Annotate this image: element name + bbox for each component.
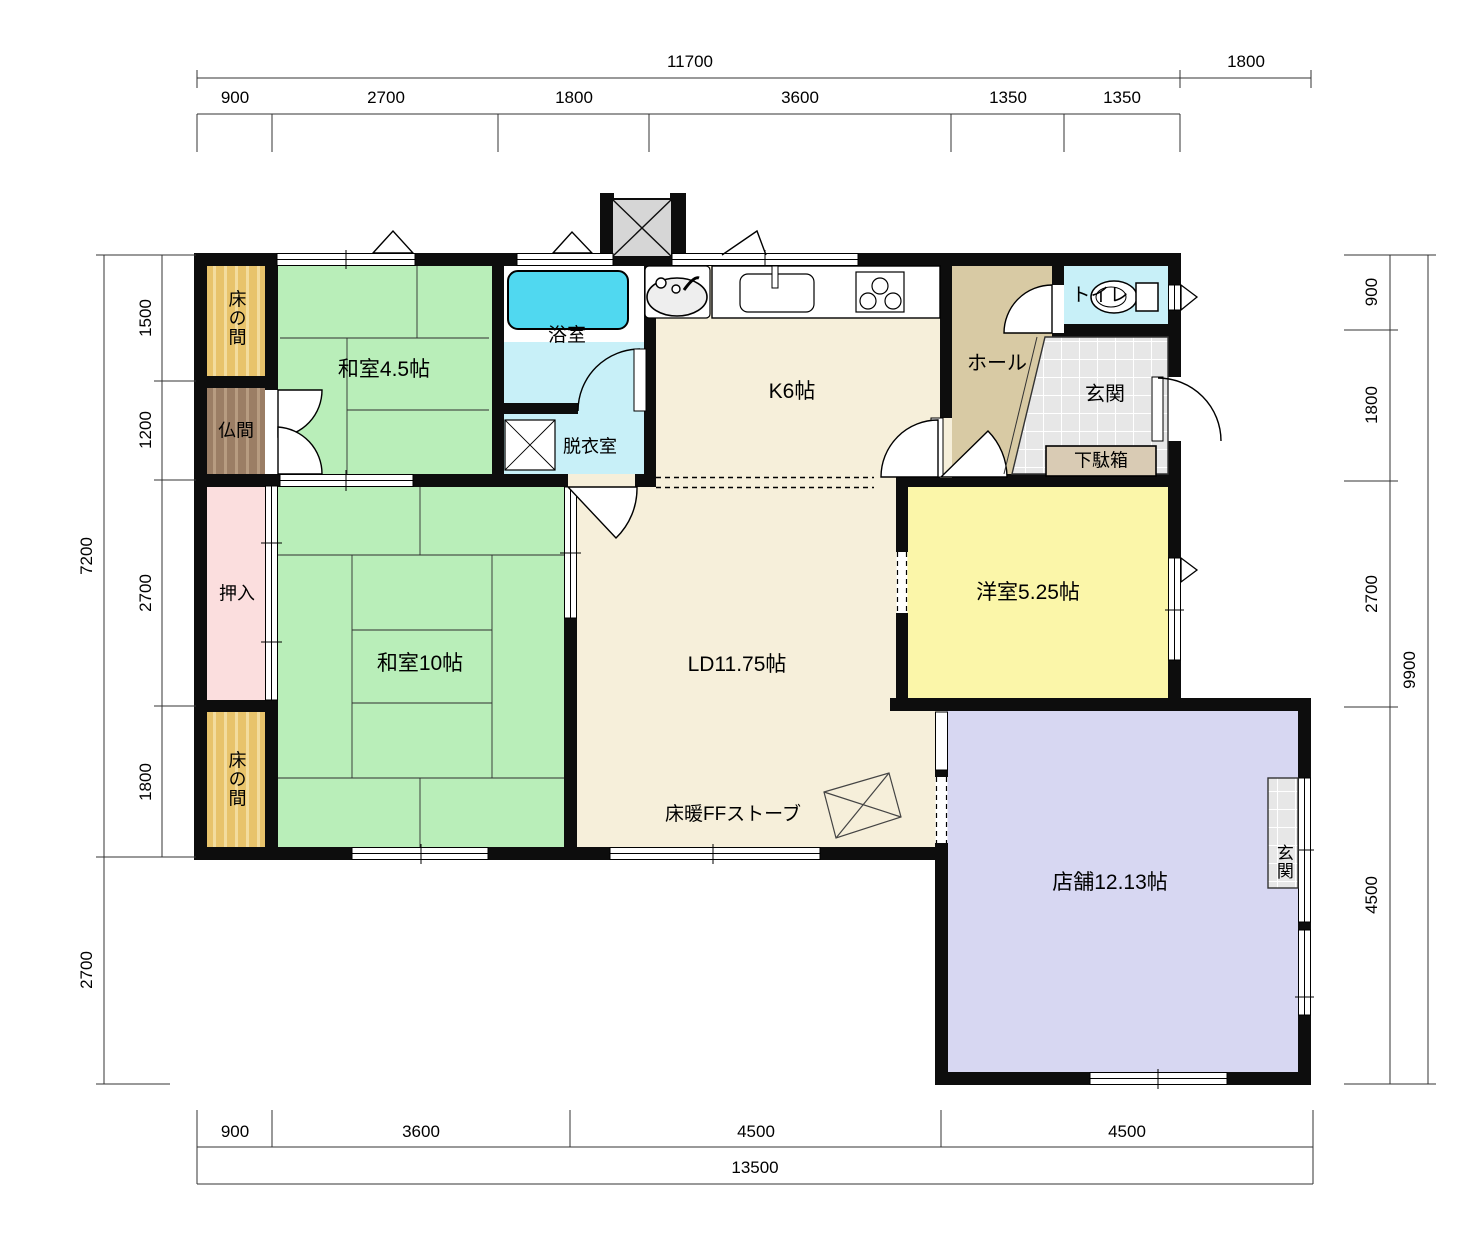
dim-top-seg-0: 900 bbox=[221, 88, 249, 108]
washbasin-icon bbox=[645, 266, 710, 318]
door-dressing-ld bbox=[568, 487, 637, 538]
dim-left-total: 7200 bbox=[77, 537, 97, 575]
opening-shop-left bbox=[936, 712, 948, 843]
label-entrance: 玄関 bbox=[1085, 385, 1125, 406]
label-washitsu-10: 和室10帖 bbox=[377, 653, 463, 675]
door-butsuma-lower bbox=[278, 427, 322, 474]
window-shop-south bbox=[1090, 1069, 1227, 1089]
door-genkan bbox=[1152, 377, 1221, 441]
dim-right-total: 9900 bbox=[1400, 651, 1420, 689]
label-washitsu-45: 和室4.5帖 bbox=[338, 359, 430, 381]
window-bathroom bbox=[517, 232, 613, 266]
bathtub-icon bbox=[508, 271, 628, 329]
dim-left-seg-1: 1200 bbox=[136, 411, 156, 449]
floor-plan-canvas: 床の間 和室4.5帖 仏間 浴室 脱衣室 K6帖 ホール トイレ 玄関 下駄箱 … bbox=[0, 0, 1484, 1240]
dim-right-seg-3: 4500 bbox=[1362, 876, 1382, 914]
fusuma-washitsu10-ld bbox=[560, 487, 581, 618]
washing-machine-icon bbox=[505, 420, 555, 470]
label-butsuma: 仏間 bbox=[218, 422, 254, 441]
dim-top-seg-4: 1350 bbox=[989, 88, 1027, 108]
window-washitsu45 bbox=[277, 231, 415, 269]
dim-top-seg-2: 1800 bbox=[555, 88, 593, 108]
dim-bottom-seg-3: 4500 bbox=[1108, 1122, 1146, 1142]
label-closet: 押入 bbox=[219, 585, 255, 604]
dim-right-seg-1: 1800 bbox=[1362, 386, 1382, 424]
window-toilet bbox=[1169, 285, 1198, 310]
window-shop-east bbox=[1295, 930, 1314, 1015]
label-shoe-cabinet: 下駄箱 bbox=[1074, 452, 1128, 471]
window-ld-south bbox=[610, 844, 820, 864]
label-hall: ホール bbox=[967, 354, 1027, 375]
chimney-icon bbox=[612, 199, 672, 257]
kitchen-ld-boundary bbox=[656, 478, 874, 488]
dim-top-total: 11700 bbox=[667, 52, 713, 72]
label-floor-heater: 床暖FFストーブ bbox=[665, 805, 801, 825]
door-kitchen-hall bbox=[881, 418, 1007, 477]
door-bathroom bbox=[578, 349, 646, 411]
dimension-lines bbox=[96, 70, 1436, 1184]
label-kitchen: K6帖 bbox=[769, 381, 816, 403]
door-toilet bbox=[1004, 285, 1052, 333]
dim-left-lower: 2700 bbox=[77, 951, 97, 989]
dim-top-seg-5: 1350 bbox=[1103, 88, 1141, 108]
fusuma-oshiire bbox=[261, 486, 282, 700]
label-dressing-room: 脱衣室 bbox=[563, 438, 617, 457]
label-bathroom: 浴室 bbox=[548, 326, 586, 346]
dim-right-seg-2: 2700 bbox=[1362, 575, 1382, 613]
label-tokonoma-top: 床の間 bbox=[227, 290, 246, 347]
dim-bottom-total: 13500 bbox=[731, 1158, 778, 1178]
label-living-dining: LD11.75帖 bbox=[688, 654, 787, 676]
dim-left-seg-2: 2700 bbox=[136, 574, 156, 612]
dim-right-seg-0: 900 bbox=[1362, 278, 1382, 306]
label-western-room: 洋室5.25帖 bbox=[976, 582, 1080, 604]
window-western bbox=[1165, 558, 1197, 660]
dim-top-seg-1: 2700 bbox=[367, 88, 405, 108]
label-shop-entrance: 玄関 bbox=[1274, 844, 1292, 880]
opening-western-left bbox=[897, 552, 908, 613]
dim-bottom-seg-2: 4500 bbox=[737, 1122, 775, 1142]
dim-top-annex: 1800 bbox=[1227, 52, 1265, 72]
kitchen-counter-icon bbox=[712, 266, 940, 318]
dim-left-seg-0: 1500 bbox=[136, 299, 156, 337]
label-tokonoma-bottom: 床の間 bbox=[227, 751, 246, 808]
dim-bottom-seg-1: 3600 bbox=[402, 1122, 440, 1142]
label-shop: 店舗12.13帖 bbox=[1052, 872, 1168, 894]
dim-left-seg-3: 1800 bbox=[136, 763, 156, 801]
ff-stove-icon bbox=[824, 773, 901, 838]
dim-top-seg-3: 3600 bbox=[781, 88, 819, 108]
window-kitchen bbox=[672, 231, 858, 269]
label-toilet: トイレ bbox=[1071, 286, 1128, 306]
dim-bottom-seg-0: 900 bbox=[221, 1122, 249, 1142]
